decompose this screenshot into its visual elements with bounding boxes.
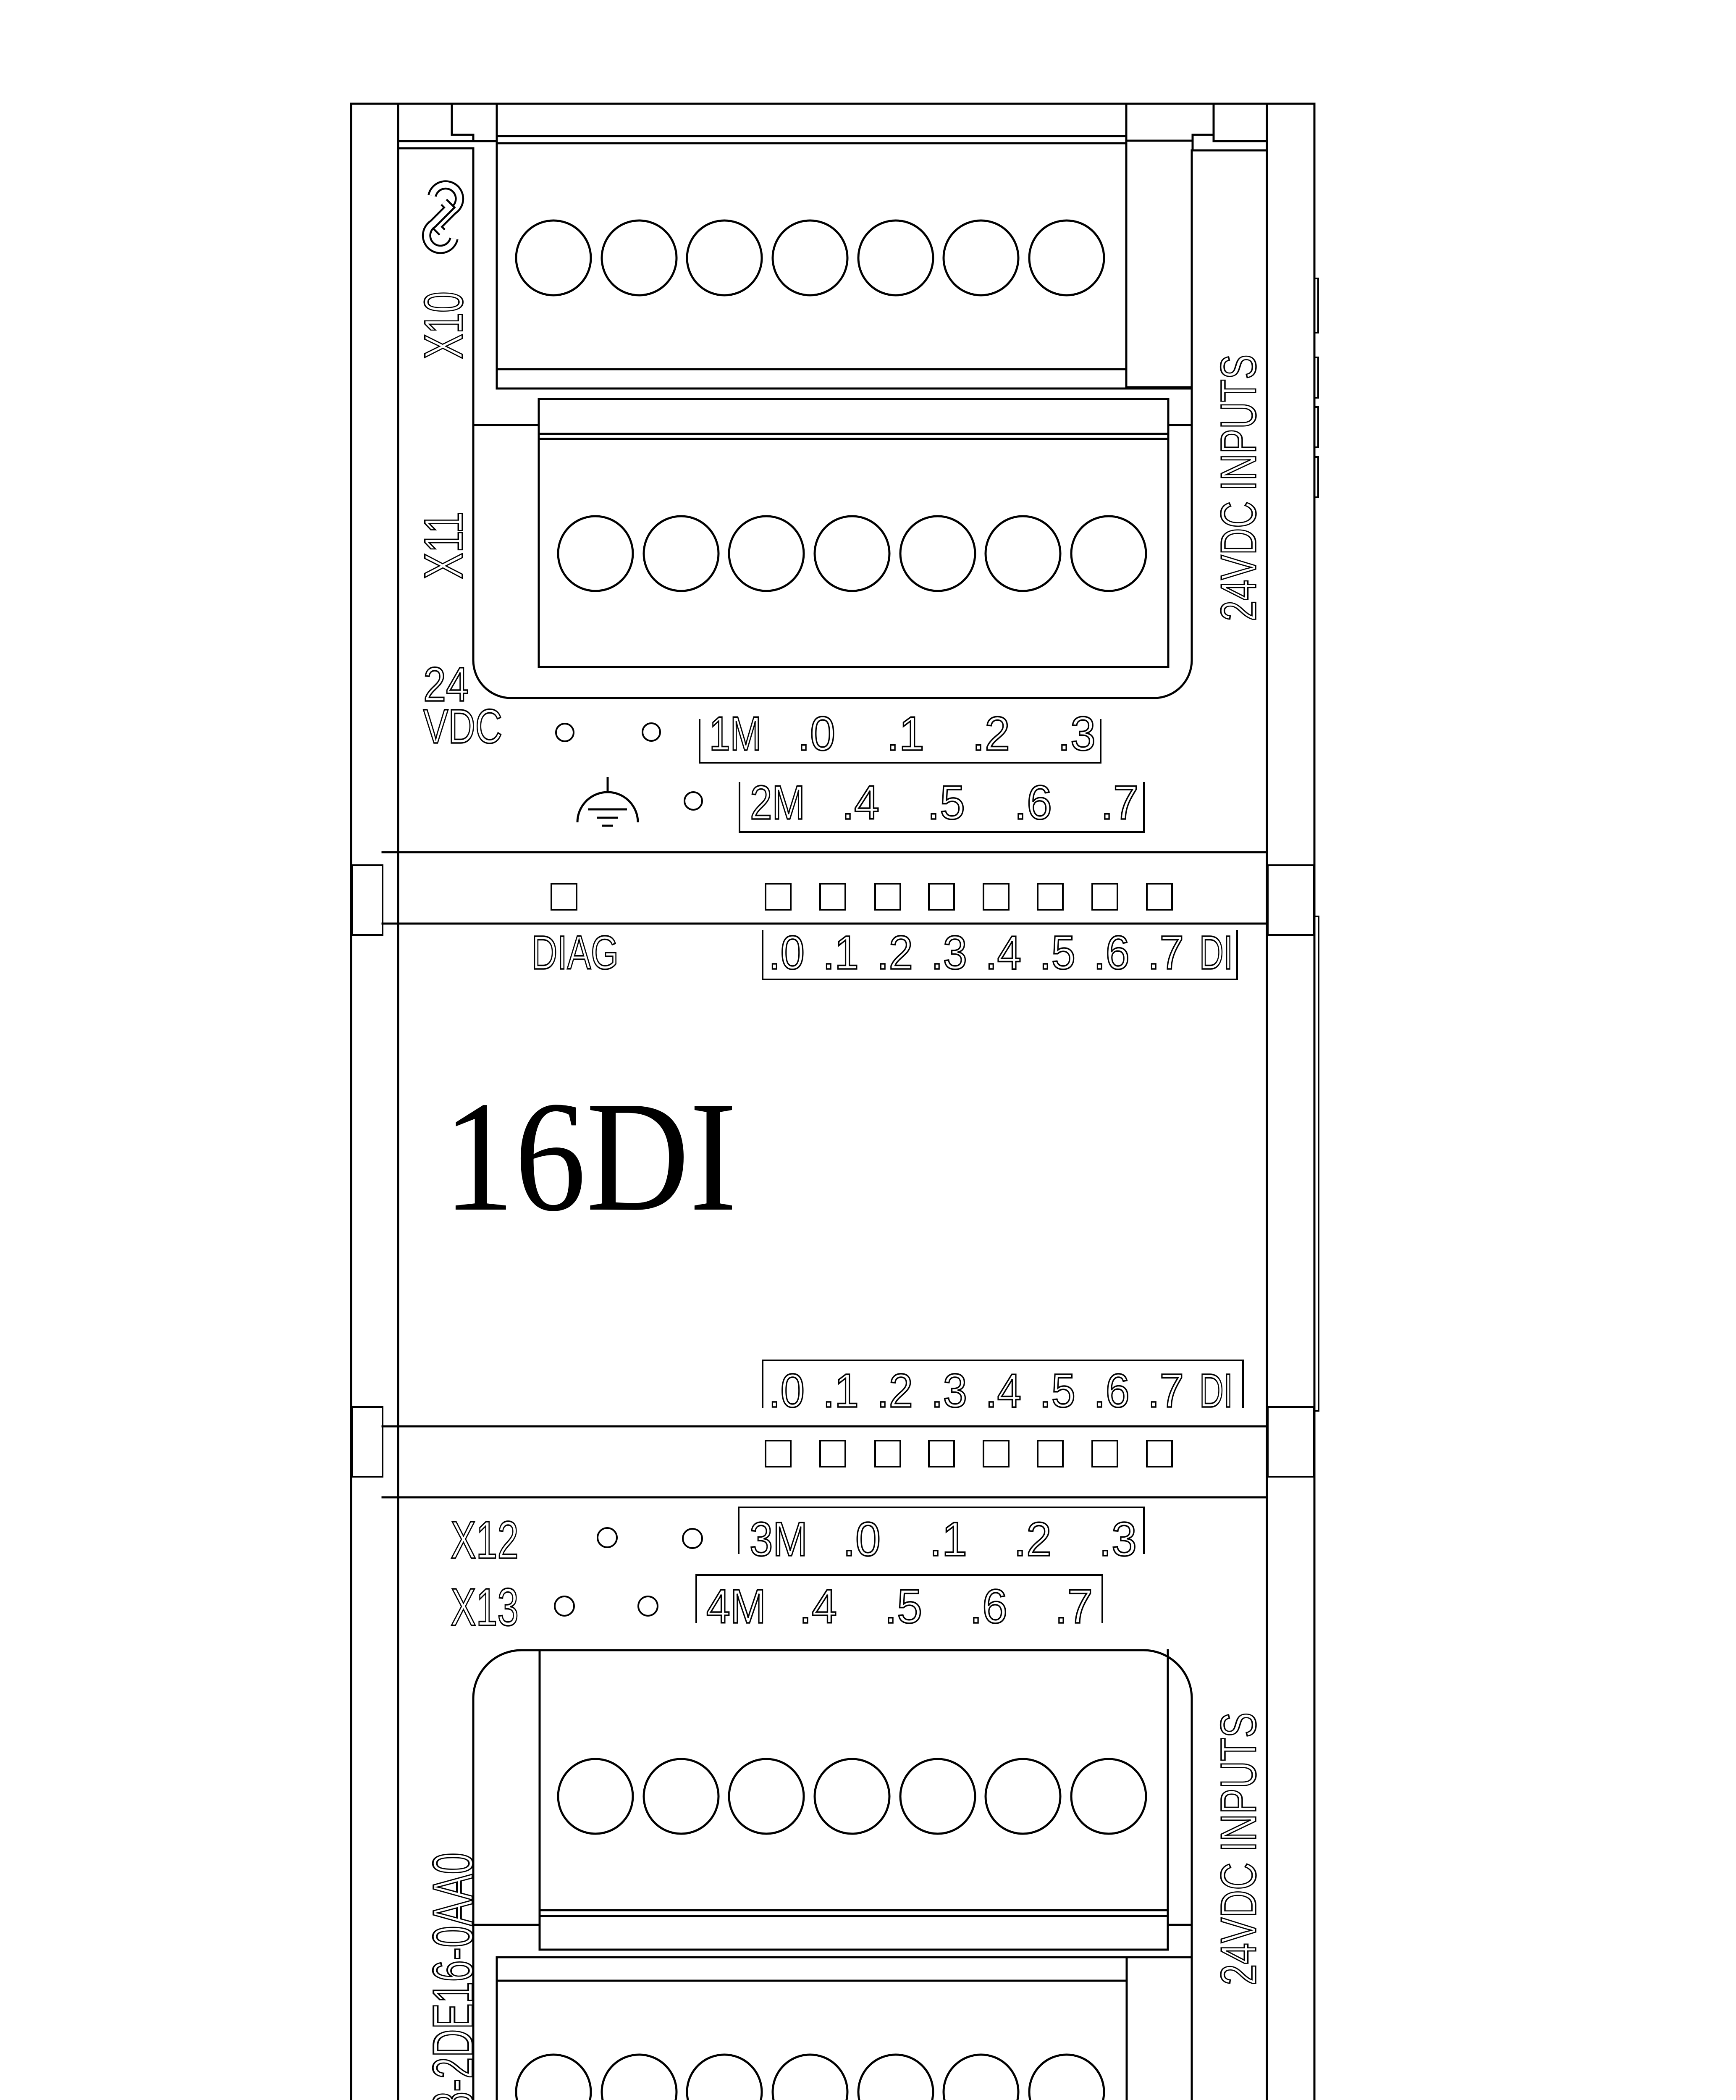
svg-text:.4: .4 [799, 1580, 837, 1633]
svg-text:16DI: 16DI [443, 1068, 737, 1244]
svg-text:.7: .7 [1055, 1580, 1093, 1633]
svg-text:288-2DE16-0AA0: 288-2DE16-0AA0 [421, 1853, 485, 2100]
svg-text:.0: .0 [768, 1364, 805, 1417]
svg-text:.0: .0 [797, 707, 835, 761]
svg-text:X11: X11 [413, 512, 474, 579]
svg-text:.6: .6 [1014, 776, 1052, 829]
svg-text:DIAG: DIAG [532, 926, 619, 979]
svg-text:.1: .1 [929, 1513, 967, 1566]
svg-text:.0: .0 [843, 1513, 881, 1566]
svg-text:DI: DI [1199, 926, 1233, 979]
svg-text:.7: .7 [1148, 1364, 1184, 1417]
svg-text:.1: .1 [886, 707, 924, 761]
svg-text:X12: X12 [451, 1510, 519, 1570]
svg-text:.1: .1 [823, 926, 859, 979]
svg-text:.6: .6 [1094, 1364, 1130, 1417]
svg-text:.7: .7 [1101, 776, 1138, 829]
svg-text:X10: X10 [413, 291, 474, 359]
svg-text:.3: .3 [931, 1364, 967, 1417]
svg-text:.2: .2 [877, 926, 913, 979]
svg-text:.2: .2 [972, 707, 1010, 761]
svg-text:.3: .3 [1058, 707, 1096, 761]
svg-text:X13: X13 [451, 1578, 519, 1637]
svg-text:2M: 2M [750, 776, 805, 829]
svg-text:.1: .1 [823, 1364, 859, 1417]
svg-text:.4: .4 [985, 1364, 1021, 1417]
svg-text:.2: .2 [1014, 1513, 1052, 1566]
svg-text:.4: .4 [985, 926, 1021, 979]
svg-text:.7: .7 [1148, 926, 1184, 979]
svg-text:24VDC INPUTS: 24VDC INPUTS [1211, 354, 1267, 621]
svg-text:DI: DI [1199, 1364, 1233, 1417]
svg-text:.3: .3 [931, 926, 967, 979]
svg-text:.6: .6 [970, 1580, 1007, 1633]
svg-text:.0: .0 [768, 926, 805, 979]
svg-text:1M: 1M [709, 707, 761, 761]
svg-text:4M: 4M [706, 1580, 766, 1633]
svg-text:VDC: VDC [423, 700, 502, 753]
svg-text:.5: .5 [927, 776, 965, 829]
svg-text:3M: 3M [750, 1513, 808, 1566]
svg-text:.3: .3 [1099, 1513, 1137, 1566]
svg-text:24VDC INPUTS: 24VDC INPUTS [1211, 1712, 1267, 1985]
svg-text:.5: .5 [1039, 1364, 1075, 1417]
svg-text:.6: .6 [1094, 926, 1130, 979]
svg-text:.4: .4 [842, 776, 879, 829]
svg-text:.5: .5 [884, 1580, 922, 1633]
svg-text:.2: .2 [877, 1364, 913, 1417]
svg-text:.5: .5 [1039, 926, 1075, 979]
